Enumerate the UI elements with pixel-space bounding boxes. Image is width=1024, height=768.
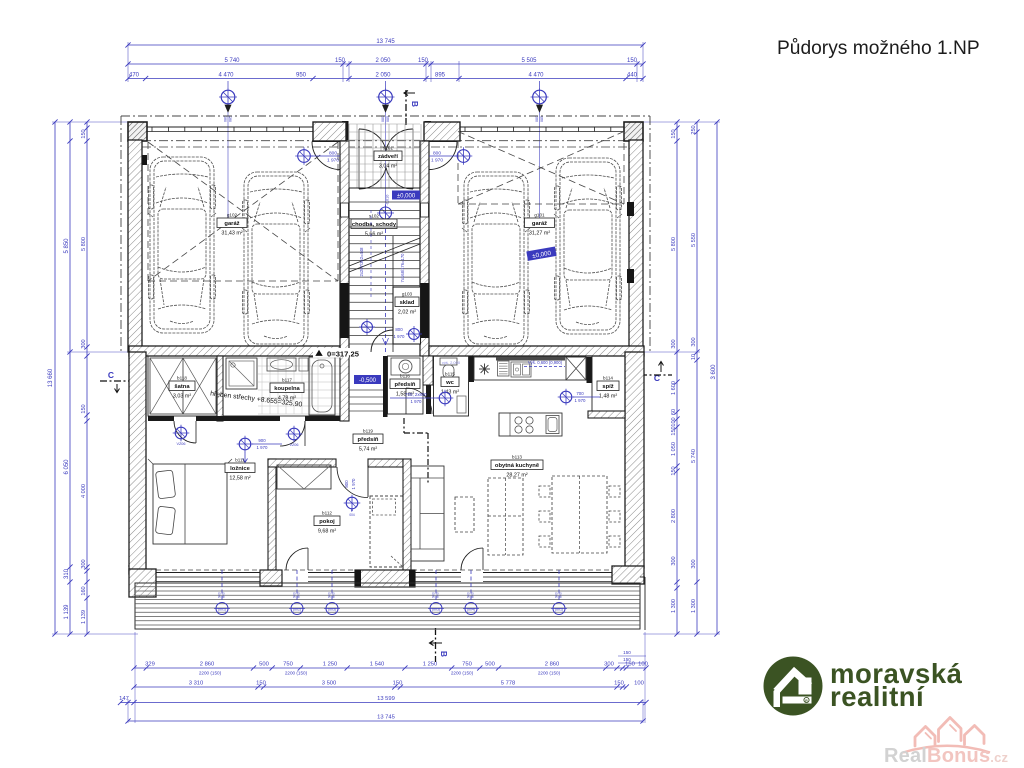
- svg-text:ložnice: ložnice: [230, 466, 250, 472]
- svg-text:800: 800: [222, 592, 226, 598]
- svg-text:(o02): (o02): [293, 608, 301, 612]
- svg-text:(o01): (o01): [555, 608, 563, 612]
- svg-text:2 050: 2 050: [375, 72, 391, 78]
- svg-text:150: 150: [614, 681, 624, 687]
- svg-text:g102: g102: [227, 213, 238, 218]
- svg-text:080: 080: [535, 116, 539, 122]
- svg-text:2200 (150): 2200 (150): [285, 671, 308, 676]
- svg-text:300: 300: [81, 339, 87, 348]
- svg-text:1 970: 1 970: [411, 399, 423, 404]
- svg-text:5 778: 5 778: [501, 681, 516, 687]
- svg-text:6 050: 6 050: [64, 459, 70, 475]
- svg-text:-0,500: -0,500: [359, 378, 377, 384]
- svg-text:310: 310: [64, 568, 70, 579]
- svg-text:obytná kuchyně: obytná kuchyně: [495, 463, 540, 469]
- svg-text:±0,000: ±0,000: [397, 194, 416, 200]
- svg-text:realitní: realitní: [830, 681, 925, 712]
- svg-text:VZ06: VZ06: [289, 443, 298, 447]
- svg-text:4 000: 4 000: [81, 484, 87, 498]
- svg-text:wc: wc: [445, 380, 455, 386]
- svg-text:(o01): (o01): [218, 608, 226, 612]
- svg-text:800: 800: [329, 151, 337, 157]
- svg-text:(o03): (o03): [432, 608, 440, 612]
- svg-text:b113: b113: [512, 455, 522, 460]
- svg-text:1 970: 1 970: [575, 398, 587, 403]
- svg-text:300: 300: [81, 559, 87, 568]
- svg-text:800: 800: [471, 592, 475, 598]
- svg-text:150: 150: [671, 129, 677, 138]
- svg-text:zádveří: zádveří: [378, 154, 398, 160]
- svg-text:700: 700: [576, 391, 584, 396]
- svg-text:s101: s101: [383, 146, 393, 151]
- svg-text:b118: b118: [177, 376, 187, 381]
- svg-text:5,66 m²: 5,66 m²: [365, 232, 383, 238]
- svg-text:300: 300: [691, 559, 697, 568]
- svg-text:pokoj: pokoj: [319, 519, 335, 525]
- svg-text:2200 (150): 2200 (150): [199, 671, 222, 676]
- svg-text:13 745: 13 745: [376, 39, 395, 45]
- svg-text:100: 100: [671, 417, 677, 426]
- svg-text:300: 300: [691, 337, 697, 346]
- svg-text:31,27 m²: 31,27 m²: [529, 231, 550, 237]
- svg-text:spíž: spíž: [602, 384, 613, 390]
- svg-text:10: 10: [691, 354, 697, 360]
- svg-text:5 800: 5 800: [81, 237, 87, 251]
- svg-text:RealBonus.cz: RealBonus.cz: [884, 745, 1009, 767]
- svg-text:b116: b116: [400, 374, 410, 379]
- svg-text:300: 300: [671, 339, 677, 348]
- svg-text:895: 895: [435, 72, 446, 78]
- svg-text:4 470: 4 470: [528, 72, 544, 78]
- svg-text:1 970: 1 970: [431, 158, 443, 164]
- svg-text:1 600: 1 600: [671, 381, 677, 395]
- svg-text:koupelna: koupelna: [274, 386, 300, 392]
- svg-text:5 740: 5 740: [691, 449, 697, 463]
- svg-text:150: 150: [671, 466, 677, 475]
- svg-text:150: 150: [625, 662, 635, 668]
- svg-text:080: 080: [381, 116, 385, 122]
- svg-text:garáž: garáž: [532, 221, 547, 227]
- svg-text:Půdorys možného 1.NP: Půdorys možného 1.NP: [777, 38, 980, 59]
- svg-text:160: 160: [81, 586, 87, 595]
- svg-text:b112: b112: [322, 511, 332, 516]
- svg-text:b117: b117: [282, 378, 292, 383]
- svg-text:(o04): (o04): [467, 608, 475, 612]
- svg-text:150: 150: [81, 129, 87, 138]
- svg-text:150: 150: [256, 681, 266, 687]
- svg-text:1 300: 1 300: [691, 599, 697, 613]
- svg-text:329: 329: [145, 662, 155, 668]
- svg-text:750: 750: [283, 662, 293, 668]
- svg-text:s102: s102: [369, 214, 379, 219]
- svg-text:předsíň: předsíň: [358, 437, 379, 443]
- svg-text:B: B: [439, 651, 449, 657]
- svg-text:g101: g101: [534, 213, 545, 218]
- svg-text:2 860: 2 860: [545, 662, 560, 668]
- svg-text:080: 080: [224, 116, 228, 122]
- svg-text:800: 800: [433, 151, 441, 157]
- svg-text:5,74 m²: 5,74 m²: [359, 447, 377, 453]
- svg-text:1 970: 1 970: [327, 158, 339, 164]
- svg-text:150: 150: [671, 426, 677, 435]
- svg-text:1,48 m²: 1,48 m²: [599, 394, 617, 400]
- svg-text:předsíň: předsíň: [395, 382, 416, 388]
- svg-text:b115: b115: [445, 372, 455, 377]
- svg-text:150: 150: [623, 650, 631, 655]
- svg-text:5 850: 5 850: [64, 238, 70, 254]
- svg-text:750: 750: [462, 662, 472, 668]
- svg-text:1 139: 1 139: [81, 610, 87, 624]
- svg-text:3,03 m²: 3,03 m²: [173, 394, 191, 400]
- svg-text:150: 150: [627, 58, 638, 64]
- svg-text:b114: b114: [603, 376, 613, 381]
- svg-text:13 599: 13 599: [377, 696, 395, 702]
- svg-text:300: 300: [604, 662, 614, 668]
- svg-text:Výš. 0,600 (0,900): Výš. 0,600 (0,900): [528, 360, 563, 365]
- svg-text:440: 440: [627, 72, 638, 78]
- svg-text:2,02 m²: 2,02 m²: [398, 310, 416, 316]
- svg-text:800: 800: [344, 480, 349, 488]
- svg-text:700, 2x800: 700, 2x800: [405, 392, 427, 397]
- svg-text:garáž: garáž: [224, 221, 239, 227]
- svg-text:800: 800: [395, 327, 403, 332]
- svg-text:(o03): (o03): [328, 608, 336, 612]
- svg-text:100: 100: [638, 662, 648, 668]
- svg-text:13 745: 13 745: [377, 715, 395, 721]
- svg-text:60: 60: [671, 409, 677, 415]
- svg-text:sklad: sklad: [400, 300, 415, 306]
- svg-text:147: 147: [119, 696, 129, 702]
- svg-text:085: 085: [540, 116, 544, 122]
- svg-text:-0,010: -0,010: [386, 195, 390, 206]
- svg-text:4 470: 4 470: [218, 72, 234, 78]
- svg-text:šatna: šatna: [174, 384, 190, 390]
- svg-text:7x168/176=170: 7x168/176=170: [400, 253, 405, 283]
- svg-text:b111: b111: [235, 458, 245, 463]
- svg-text:1 050: 1 050: [671, 442, 677, 456]
- svg-text:2 860: 2 860: [200, 662, 215, 668]
- svg-text:085: 085: [229, 116, 233, 122]
- svg-text:2200 (150): 2200 (150): [451, 671, 474, 676]
- svg-text:800: 800: [297, 592, 301, 598]
- svg-text:1 970: 1 970: [257, 445, 269, 450]
- svg-text:9,68 m²: 9,68 m²: [318, 529, 336, 535]
- svg-text:3,04 m²: 3,04 m²: [379, 164, 397, 170]
- svg-text:3 500: 3 500: [322, 681, 337, 687]
- svg-text:B: B: [410, 101, 420, 107]
- svg-text:5 740: 5 740: [224, 58, 240, 64]
- svg-text:300: 300: [671, 556, 677, 565]
- svg-text:5 505: 5 505: [521, 58, 537, 64]
- svg-text:900: 900: [258, 438, 266, 443]
- svg-text:150: 150: [81, 404, 87, 413]
- svg-text:2200 (150): 2200 (150): [538, 671, 561, 676]
- svg-text:g103: g103: [402, 292, 413, 297]
- svg-text:250: 250: [691, 125, 697, 134]
- svg-text:150: 150: [335, 58, 346, 64]
- svg-text:1 139: 1 139: [64, 604, 70, 620]
- svg-text:100: 100: [634, 681, 644, 687]
- svg-text:3 600: 3 600: [711, 364, 717, 380]
- svg-text:1 970: 1 970: [394, 334, 406, 339]
- svg-text:C: C: [108, 370, 114, 380]
- svg-text:800: 800: [332, 592, 336, 598]
- svg-text:13 660: 13 660: [48, 368, 54, 387]
- svg-text:2x207/362=448: 2x207/362=448: [359, 247, 364, 277]
- svg-text:2 050: 2 050: [375, 58, 391, 64]
- svg-text:800: 800: [559, 592, 563, 598]
- svg-text:1 300: 1 300: [671, 599, 677, 613]
- svg-text:800: 800: [436, 592, 440, 598]
- svg-text:1 250: 1 250: [323, 662, 338, 668]
- svg-text:1 540: 1 540: [370, 662, 385, 668]
- svg-text:085: 085: [386, 116, 390, 122]
- svg-text:5 800: 5 800: [671, 237, 677, 251]
- svg-text:150: 150: [393, 681, 403, 687]
- svg-text:VZ06: VZ06: [176, 442, 185, 446]
- svg-text:5 550: 5 550: [691, 233, 697, 247]
- svg-text:0=317,25: 0=317,25: [327, 350, 360, 359]
- svg-text:2 800: 2 800: [671, 509, 677, 523]
- svg-text:500: 500: [259, 662, 269, 668]
- svg-text:500: 500: [485, 662, 495, 668]
- svg-text:004: 004: [349, 513, 355, 517]
- svg-text:12,58 m²: 12,58 m²: [229, 476, 250, 482]
- svg-text:1 250: 1 250: [423, 662, 438, 668]
- svg-text:31,43 m²: 31,43 m²: [221, 231, 242, 237]
- svg-text:1 970: 1 970: [351, 478, 356, 490]
- svg-text:150: 150: [418, 58, 429, 64]
- svg-text:b119: b119: [363, 429, 373, 434]
- svg-text:3 310: 3 310: [189, 681, 204, 687]
- svg-text:950: 950: [296, 72, 307, 78]
- svg-text:470: 470: [129, 72, 140, 78]
- svg-text:výš. 2,000: výš. 2,000: [442, 360, 461, 365]
